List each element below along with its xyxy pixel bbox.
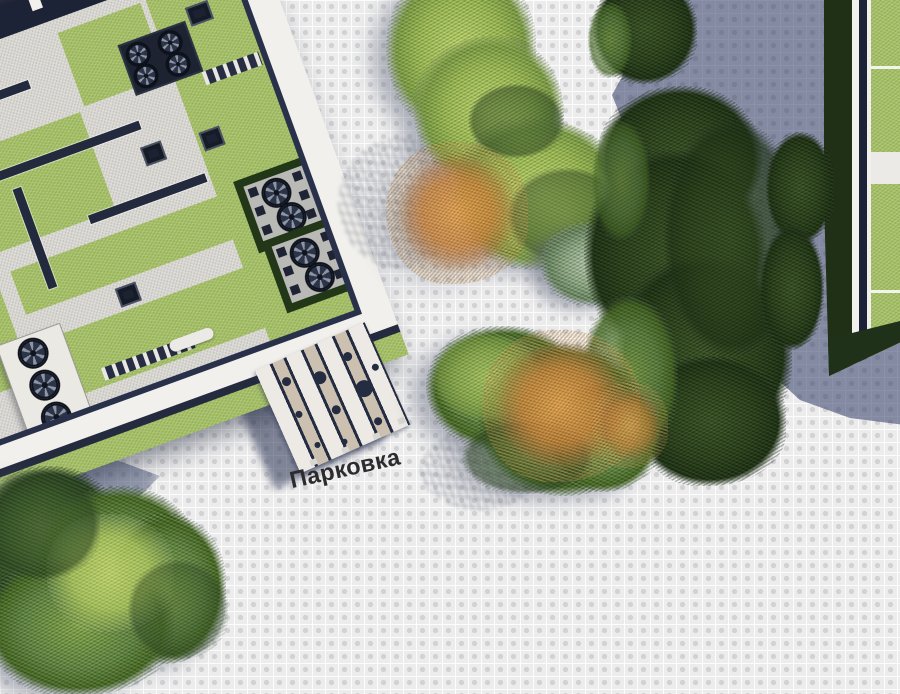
foliage-blob: [0, 470, 100, 580]
bush-bottom-left: [0, 0, 900, 694]
site-plan-scene: Парковка: [0, 0, 900, 694]
foliage-blob: [128, 560, 228, 660]
